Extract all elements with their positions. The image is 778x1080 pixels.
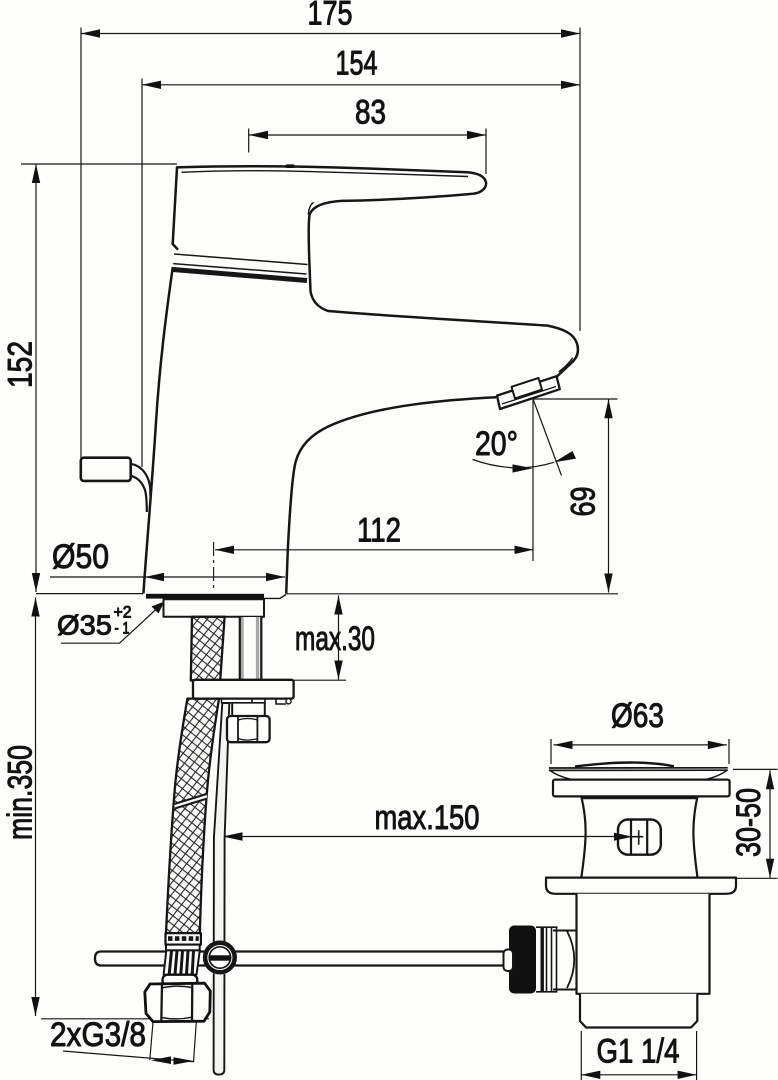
svg-text:175: 175 [308,0,353,33]
svg-text:Ø35: Ø35 [57,610,112,641]
svg-text:max.30: max.30 [295,620,375,658]
svg-text:Ø50: Ø50 [52,538,109,576]
svg-text:20°: 20° [475,425,518,463]
svg-text:max.150: max.150 [375,799,480,837]
svg-text:112: 112 [357,512,401,550]
svg-text:30-50: 30-50 [730,788,768,857]
svg-text:min.350: min.350 [2,745,40,840]
svg-text:152: 152 [2,341,40,388]
svg-text:G1 1/4: G1 1/4 [597,1033,680,1071]
svg-text:Ø63: Ø63 [611,697,664,735]
svg-text:2xG3/8: 2xG3/8 [50,1016,146,1054]
svg-text:- 1: - 1 [115,619,130,638]
svg-text:154: 154 [336,45,378,83]
svg-text:69: 69 [565,487,603,517]
svg-text:83: 83 [355,94,386,132]
